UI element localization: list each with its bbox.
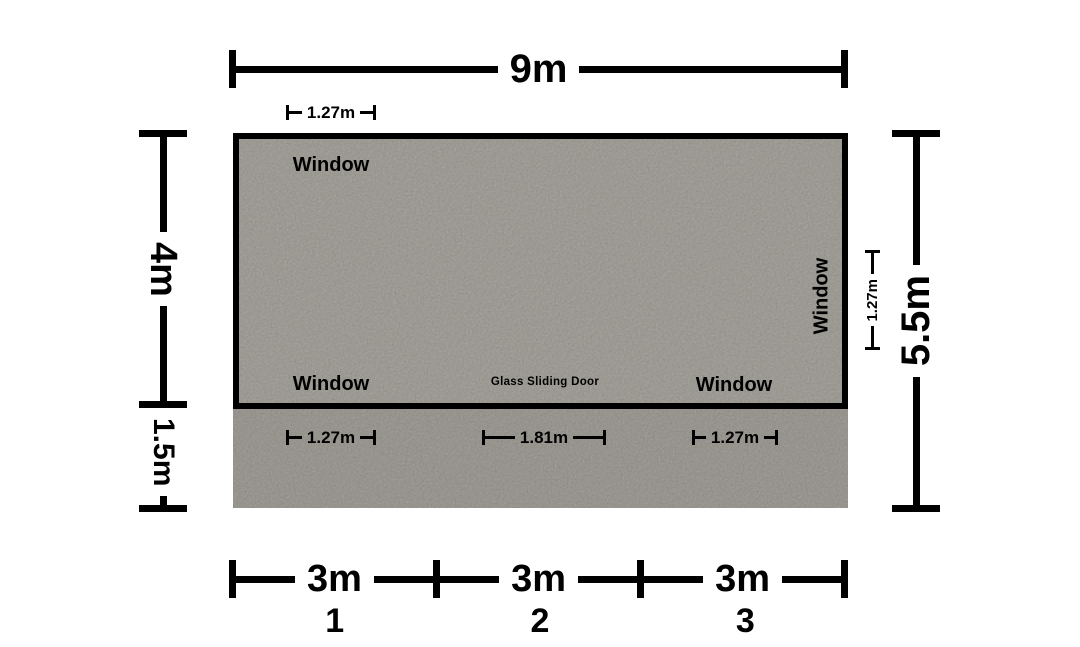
dimension-line [289, 111, 302, 114]
concrete-texture [239, 139, 842, 403]
dimension-label: 3m [499, 560, 578, 598]
dimension-line [764, 436, 775, 439]
dimension-line [360, 111, 373, 114]
dimension-line [644, 576, 703, 583]
dimension-line [236, 66, 498, 73]
dimension-label: 5.5m [896, 265, 936, 376]
dimension-line [871, 253, 874, 274]
dimension-right-window: 1.27m [864, 250, 880, 350]
dimension-cap [139, 505, 187, 512]
window-label-top-left: Window [293, 154, 369, 177]
dimension-cap [229, 560, 236, 598]
dimension-cap [139, 130, 187, 137]
dimension-room-depth: 4m [139, 130, 187, 408]
dimension-top-window-offset: 1.27m [286, 104, 376, 120]
dimension-tick [865, 347, 880, 350]
window-label-bottom-left: Window [293, 373, 369, 396]
dimension-line [360, 436, 373, 439]
dimension-label: 1.27m [706, 429, 764, 446]
dimension-line [160, 496, 167, 505]
dimension-tick [373, 430, 376, 445]
dimension-cap [841, 560, 848, 598]
dimension-label: 1.27m [865, 274, 880, 327]
dimension-bottom-segments: 3m 3m 3m [229, 560, 848, 598]
dimension-line [289, 436, 302, 439]
dimension-cap [841, 50, 848, 88]
dimension-tick [373, 105, 376, 120]
dimension-cap [139, 401, 187, 408]
dimension-label: 3m [295, 560, 374, 598]
window-label-right-text: Window [811, 258, 834, 334]
dimension-tick [603, 430, 606, 445]
dimension-line [913, 377, 920, 505]
dimension-label: 1.27m [302, 104, 360, 121]
dimension-label: 1.81m [515, 429, 573, 446]
dimension-line [440, 576, 499, 583]
dimension-line [374, 576, 433, 583]
dimension-cap [229, 50, 236, 88]
segment-number-3: 3 [643, 602, 848, 641]
segment-number-1: 1 [232, 602, 437, 641]
floor-plan-canvas: 9m 1.27m Window Window Glass Sliding Doo… [0, 0, 1080, 647]
dimension-patio-depth: 1.5m [139, 401, 187, 512]
dimension-label: 1.27m [302, 429, 360, 446]
dimension-line [695, 436, 706, 439]
dimension-line [578, 576, 637, 583]
patio-slab [233, 409, 848, 508]
dimension-line [485, 436, 515, 439]
window-label-bottom-right: Window [696, 374, 772, 397]
dimension-label: 9m [498, 49, 580, 89]
dimension-cap [892, 505, 940, 512]
dimension-patio-left-window: 1.27m [286, 429, 376, 445]
dimension-label: 3m [703, 560, 782, 598]
dimension-total-depth: 5.5m [892, 130, 940, 512]
dimension-line [160, 306, 167, 401]
segment-numbers: 1 2 3 [232, 602, 848, 641]
dimension-line [160, 137, 167, 232]
dimension-tick [637, 560, 644, 598]
dimension-patio-right-window: 1.27m [692, 429, 778, 445]
dimension-tick [433, 560, 440, 598]
room-outline: Window Window Glass Sliding Door Window … [233, 133, 848, 409]
dimension-line [913, 137, 920, 265]
window-label-right-wall: Window [811, 258, 834, 334]
dimension-label: 4m [144, 232, 182, 307]
dimension-sliding-door-width: 1.81m [482, 429, 606, 445]
segment-number-2: 2 [437, 602, 642, 641]
glass-sliding-door-label: Glass Sliding Door [491, 376, 599, 388]
dimension-line [871, 326, 874, 347]
concrete-texture [233, 409, 848, 508]
dimension-cap [892, 130, 940, 137]
dimension-label: 1.5m [148, 408, 178, 496]
dimension-line [579, 66, 841, 73]
dimension-line [236, 576, 295, 583]
dimension-line [782, 576, 841, 583]
dimension-tick [775, 430, 778, 445]
dimension-total-width: 9m [229, 50, 848, 88]
dimension-line [573, 436, 603, 439]
